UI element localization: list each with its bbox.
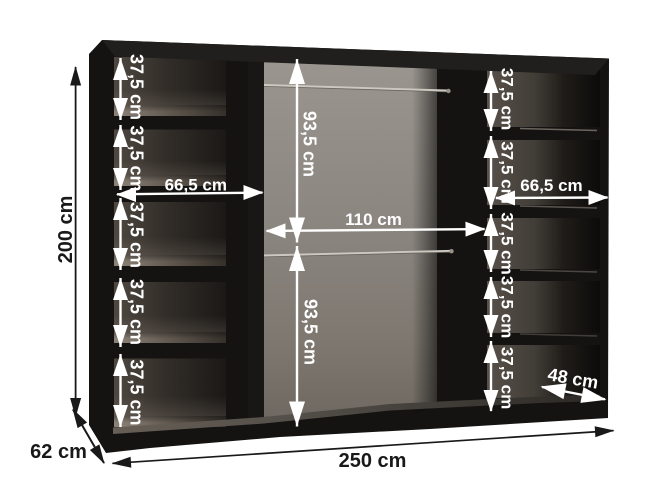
svg-text:37,5 cm: 37,5 cm bbox=[498, 212, 517, 274]
svg-text:93,5 cm: 93,5 cm bbox=[300, 111, 320, 177]
svg-text:37,5 cm: 37,5 cm bbox=[127, 54, 147, 120]
svg-text:37,5 cm: 37,5 cm bbox=[498, 141, 517, 203]
svg-text:37,5 cm: 37,5 cm bbox=[127, 359, 147, 425]
svg-text:37,5 cm: 37,5 cm bbox=[127, 279, 147, 345]
svg-text:62 cm: 62 cm bbox=[30, 441, 87, 463]
svg-text:250 cm: 250 cm bbox=[339, 450, 407, 472]
svg-text:37,5 cm: 37,5 cm bbox=[498, 347, 517, 409]
svg-text:93,5 cm: 93,5 cm bbox=[301, 299, 321, 365]
svg-text:110 cm: 110 cm bbox=[345, 210, 402, 229]
svg-text:66,5 cm: 66,5 cm bbox=[165, 176, 227, 195]
svg-text:37,5 cm: 37,5 cm bbox=[498, 276, 517, 338]
svg-text:66,5 cm: 66,5 cm bbox=[520, 176, 582, 195]
svg-text:37,5 cm: 37,5 cm bbox=[127, 202, 147, 268]
svg-text:37,5 cm: 37,5 cm bbox=[127, 125, 147, 191]
svg-text:37,5 cm: 37,5 cm bbox=[498, 68, 517, 130]
svg-text:200 cm: 200 cm bbox=[55, 196, 77, 264]
